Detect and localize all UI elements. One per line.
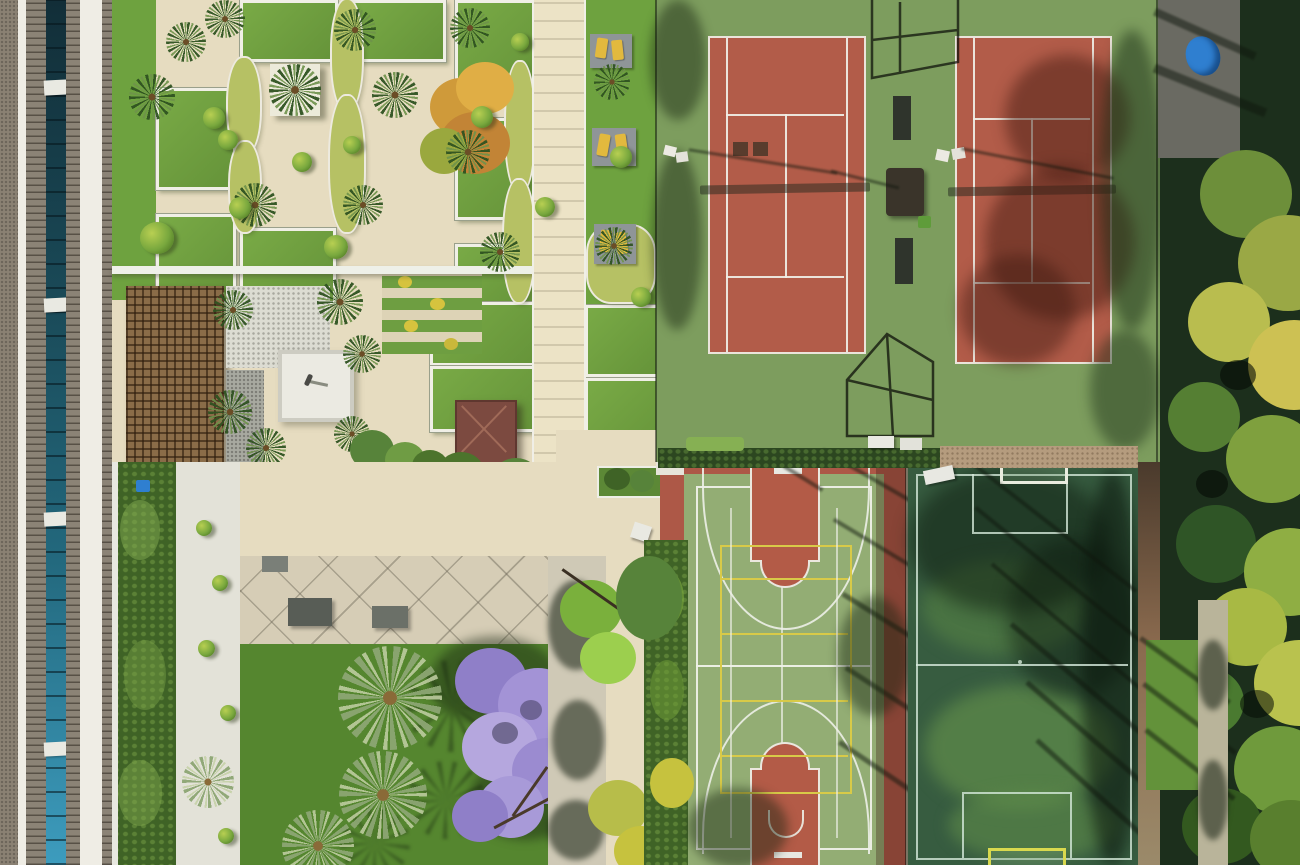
tree-canopy-bright [580, 632, 636, 684]
yellow-shrub [444, 338, 458, 350]
building-louver-band [26, 0, 46, 865]
yellow-shrub [430, 298, 445, 310]
palm-tree [343, 185, 383, 225]
jacaranda-gap [520, 700, 542, 720]
backboard-bottom [774, 852, 802, 858]
balcony-panel [44, 79, 69, 95]
pool-cart [136, 480, 150, 492]
practice-cage-top [868, 0, 962, 82]
topiary-ball [292, 152, 312, 172]
topiary-ball [471, 106, 493, 128]
building-walkway [80, 0, 102, 865]
palm-tree-large [338, 646, 442, 750]
path-shadow [1198, 640, 1228, 710]
white-bench [900, 438, 922, 450]
canopy-gap [1196, 470, 1228, 498]
yellow-lounger [611, 39, 624, 60]
walkway-shrub [196, 520, 212, 536]
building-gravel-strip [0, 0, 18, 865]
walkway-shrub [198, 640, 215, 657]
walkway-shrub [218, 828, 234, 844]
chair-shadow [753, 142, 768, 156]
yellow-tree [650, 758, 694, 808]
jacaranda-gap [492, 722, 518, 744]
palm-tree [269, 64, 321, 116]
garden-lawn-left [112, 0, 156, 300]
canopy-gap [1240, 690, 1274, 718]
tree-shadow [838, 596, 910, 716]
jacaranda-canopy [452, 790, 508, 842]
palm-tree [595, 227, 633, 265]
lawn-panel [585, 305, 664, 377]
garden-main-path [532, 0, 586, 472]
palm-tree [446, 130, 490, 174]
topiary-ball [218, 130, 238, 150]
garden-wall [112, 266, 542, 274]
sand-square [278, 350, 354, 422]
planter-shrub [604, 468, 630, 490]
walkway-shrub [212, 575, 228, 591]
walkway-shrub [220, 705, 236, 721]
tree-shadow [1100, 30, 1164, 330]
palm-tree [480, 232, 520, 272]
maintenance-equipment [886, 168, 924, 216]
building-louver-band [102, 0, 112, 865]
tree-shadow [650, 0, 706, 120]
tree-shadow [1090, 330, 1160, 450]
yellow-shrub [398, 276, 412, 288]
palm-tree [182, 756, 234, 808]
court-bench [895, 238, 913, 284]
bright-hedge [686, 437, 744, 451]
badminton-line [720, 633, 848, 635]
balcony-panel [44, 511, 69, 526]
palm-tree [166, 22, 206, 62]
tree-overhang [616, 556, 682, 640]
badminton-line [720, 755, 848, 757]
singles-sideline [726, 38, 728, 352]
floodlight-head [935, 149, 950, 162]
palm-tree [129, 74, 175, 120]
lawn-panel [240, 0, 338, 62]
court-fence [655, 0, 657, 462]
topiary-ball [343, 136, 361, 154]
tree-shadow [688, 788, 788, 865]
path-shadow [552, 700, 604, 780]
balcony-panel [44, 741, 69, 756]
topiary-ball [229, 197, 251, 219]
court-bench [893, 96, 911, 140]
white-wall [112, 462, 118, 865]
planter-shrub [630, 470, 654, 492]
topiary-ball [324, 235, 348, 259]
shrub-highlight [650, 660, 684, 720]
goal-frame-bottom [988, 848, 1066, 865]
floodlight-head [675, 151, 688, 163]
building-glass-facade [46, 0, 66, 865]
palm-tree-large [339, 751, 427, 839]
palm-tree [343, 335, 381, 373]
building-louver-band [66, 0, 80, 865]
aerial-photo [0, 0, 1300, 865]
halfway-line [916, 664, 1128, 666]
palm-tree [208, 390, 252, 434]
palm-tree [317, 279, 363, 325]
timber-pergola [126, 286, 224, 466]
topiary-ball [203, 107, 225, 129]
balcony-panel [44, 297, 69, 312]
topiary-ball [535, 197, 555, 217]
patio-mat [288, 598, 332, 626]
topiary-ball [631, 287, 651, 307]
singles-sideline [846, 38, 848, 352]
upper-patio [240, 462, 558, 558]
palm-tree [334, 9, 376, 51]
tan-walkway [940, 446, 1138, 468]
patio-table [262, 556, 288, 572]
palm-tree [205, 0, 245, 38]
tennis-court-1 [708, 36, 866, 354]
badminton-line [720, 700, 848, 702]
topiary-ball [140, 222, 174, 254]
volleyball-line [836, 508, 838, 838]
building-parapet [18, 0, 26, 865]
tree-shadow-on-clay [960, 255, 1075, 365]
palm-tree [372, 72, 418, 118]
practice-cage-bottom [845, 330, 937, 442]
hedge-highlight [118, 760, 162, 826]
badminton-line [720, 578, 848, 580]
green-bin [918, 216, 931, 228]
center-service-line [785, 114, 787, 278]
chair-shadow [733, 142, 748, 156]
tree-shadow [652, 150, 702, 330]
palm-tree [213, 290, 253, 330]
striped-parterre [382, 268, 482, 354]
palm-tree [450, 8, 490, 48]
center-spot [1018, 660, 1022, 664]
hedge-highlight [120, 500, 160, 560]
path-shadow [1198, 760, 1228, 840]
topiary-ball [511, 33, 529, 51]
patio-mat [372, 606, 408, 628]
palm-tree [594, 64, 630, 100]
yellow-shrub [404, 320, 418, 332]
hedge-row [658, 448, 942, 468]
topiary-ball [610, 146, 632, 168]
white-bench [868, 436, 894, 448]
hedge-highlight [124, 640, 166, 710]
canopy-gap [1220, 360, 1256, 390]
